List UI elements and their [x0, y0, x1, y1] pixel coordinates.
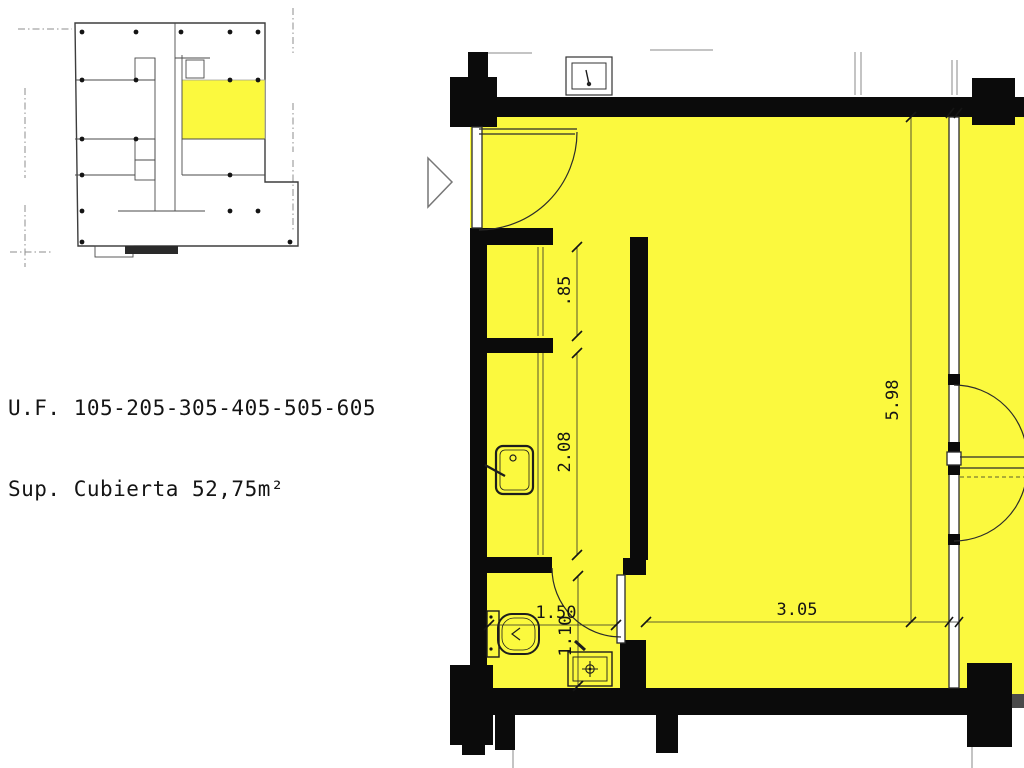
shaft-icon — [566, 57, 612, 95]
window-frame — [949, 117, 959, 688]
bathroom-door-leaf — [617, 575, 625, 643]
bottom-right-column — [967, 663, 1012, 747]
dim-label-598: 5.98 — [883, 380, 903, 421]
entrance-arrow-icon — [428, 158, 452, 207]
key-plan-walls — [75, 23, 265, 257]
key-plan-stair — [125, 246, 178, 254]
top-right-column — [972, 78, 1015, 125]
dim-label-85: .85 — [555, 276, 575, 307]
dim-label-110: 1.10 — [556, 616, 576, 657]
left-wall — [470, 228, 487, 690]
top-wall — [497, 97, 1024, 117]
partition-wall — [630, 237, 648, 560]
unit-plan: .85 2.08 1.50 1.10 3.05 — [428, 50, 1024, 768]
highlighted-unit — [182, 80, 265, 139]
bottom-wall — [470, 688, 970, 715]
dim-label-208: 2.08 — [555, 432, 575, 473]
entrance-door-leaf — [472, 127, 482, 228]
bath-wall — [470, 557, 552, 573]
bottom-left-column — [450, 665, 493, 745]
floor-plan-sheet: U.F. 105-205-305-405-505-605 Sup. Cubier… — [0, 0, 1024, 768]
floor-plan-drawing: .85 2.08 1.50 1.10 3.05 — [0, 0, 1024, 768]
top-left-column — [450, 77, 497, 127]
dim-label-305: 3.05 — [777, 600, 818, 620]
key-plan — [10, 8, 298, 267]
